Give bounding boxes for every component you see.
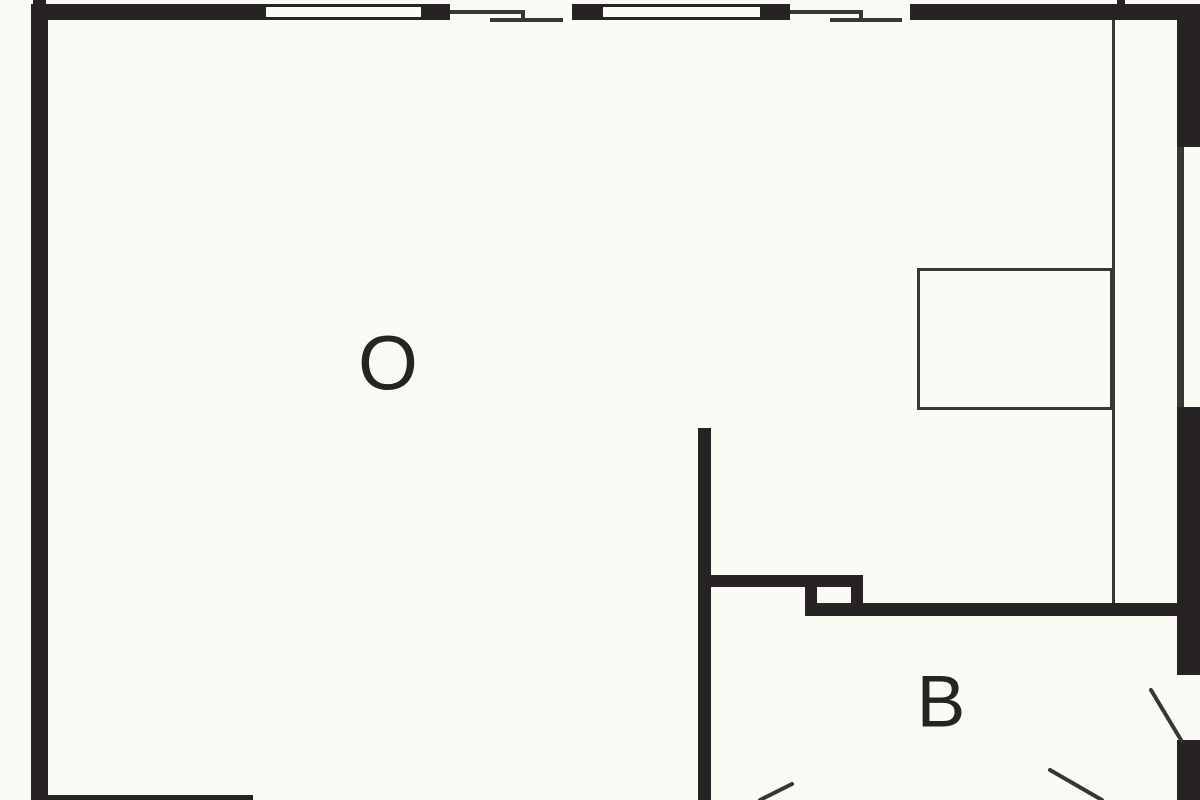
room-label-o: O: [358, 326, 418, 403]
door-leaf-bottom-center: [760, 784, 792, 800]
door-swing-overlay: [0, 0, 1200, 800]
door-leaf-bottom-right: [1050, 770, 1102, 800]
room-label-b: B: [917, 666, 966, 739]
floor-plan-canvas: O B: [0, 0, 1200, 800]
door-leaf-right-wall: [1151, 690, 1181, 740]
